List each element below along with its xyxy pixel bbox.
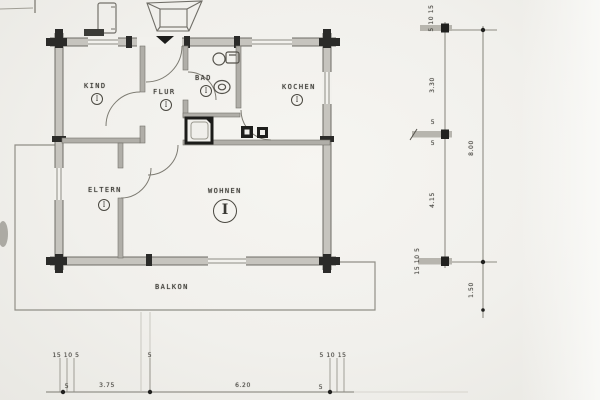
windows — [54, 37, 332, 266]
scan-artifacts — [0, 0, 35, 247]
dim-bottom-right-width: 6.20 — [228, 382, 258, 390]
room-label-kochen: KOCHEN — [282, 83, 316, 91]
dim-right-lower-depth: 4.15 — [429, 187, 437, 213]
dim-right-wall-bottom: 15 10 5 — [414, 244, 422, 278]
room-number-kochen: I — [291, 94, 303, 106]
dim-bottom-wall-right: 5 10 15 — [318, 352, 348, 360]
dim-bottom-left-width: 3.75 — [92, 382, 122, 390]
room-label-flur: FLUR — [153, 88, 175, 96]
sink-fixture — [214, 81, 230, 94]
room-label-wohnen: WOHNEN — [208, 187, 242, 195]
dim-right-wall-top: 5 10 15 — [428, 1, 436, 35]
dim-right-upper-depth: 3.30 — [429, 72, 437, 98]
room-number-bad: I — [200, 85, 212, 97]
dimension-lines-right — [410, 22, 497, 318]
stove-fixture — [241, 126, 268, 138]
room-label-bad: BAD — [195, 74, 212, 82]
chimney — [147, 1, 202, 31]
entrance-opening — [137, 36, 182, 47]
dim-bottom-mid-wall: 5 — [145, 352, 155, 360]
floorplan-drawing — [0, 0, 600, 400]
dim-bottom-left-wall-small: 5 — [62, 383, 72, 391]
room-label-eltern: ELTERN — [88, 186, 122, 194]
room-label-kind: KIND — [84, 82, 106, 90]
shower-fixture — [186, 118, 212, 143]
room-number-kind: I — [91, 93, 103, 105]
dim-right-mid-wall-lower: 5 — [428, 140, 438, 148]
toilet-fixture — [213, 52, 239, 65]
dim-bottom-wall-left: 15 10 5 — [52, 352, 80, 360]
room-number-flur: I — [160, 99, 172, 111]
room-label-balkon: BALKON — [155, 283, 189, 291]
log-corner-joints — [46, 29, 340, 273]
entry-step-box — [84, 3, 116, 36]
room-number-eltern: I — [98, 199, 110, 211]
dim-right-mid-wall-upper: 5 — [428, 119, 438, 127]
room-number-wohnen: I — [213, 199, 237, 223]
dim-right-total-depth: 8.00 — [468, 135, 476, 161]
dim-bottom-right-wall-small: 5 — [316, 384, 326, 392]
floorplan-scan-page: KIND I FLUR I BAD I KOCHEN I ELTERN I WO… — [0, 0, 600, 400]
dim-right-balcony-depth: 1.50 — [468, 277, 476, 303]
house-walls — [46, 29, 340, 273]
balcony-outline — [15, 145, 375, 310]
